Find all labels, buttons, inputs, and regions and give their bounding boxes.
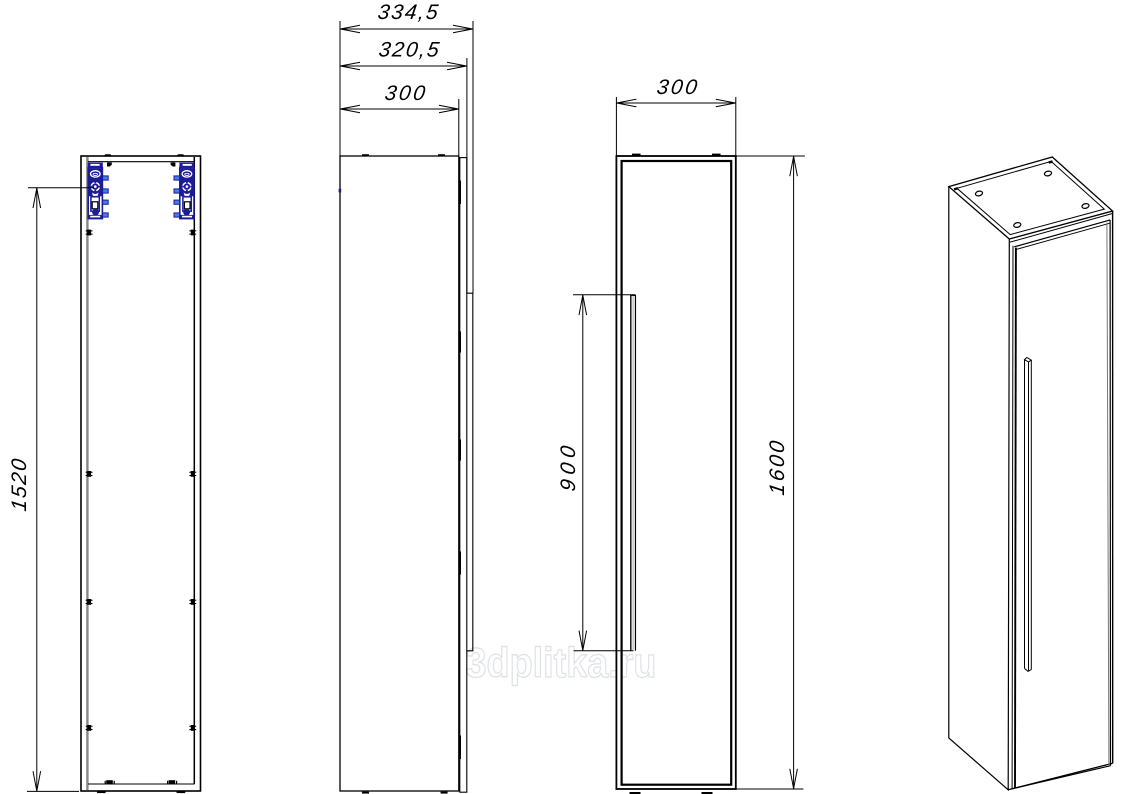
svg-text:320,5: 320,5	[377, 39, 440, 62]
svg-text:300: 300	[383, 82, 426, 105]
svg-text:900: 900	[557, 444, 580, 492]
svg-text:300: 300	[655, 76, 698, 99]
svg-text:1520: 1520	[8, 457, 31, 512]
svg-text:3dplitka.ru: 3dplitka.ru	[466, 639, 657, 686]
svg-text:334,5: 334,5	[376, 1, 439, 24]
